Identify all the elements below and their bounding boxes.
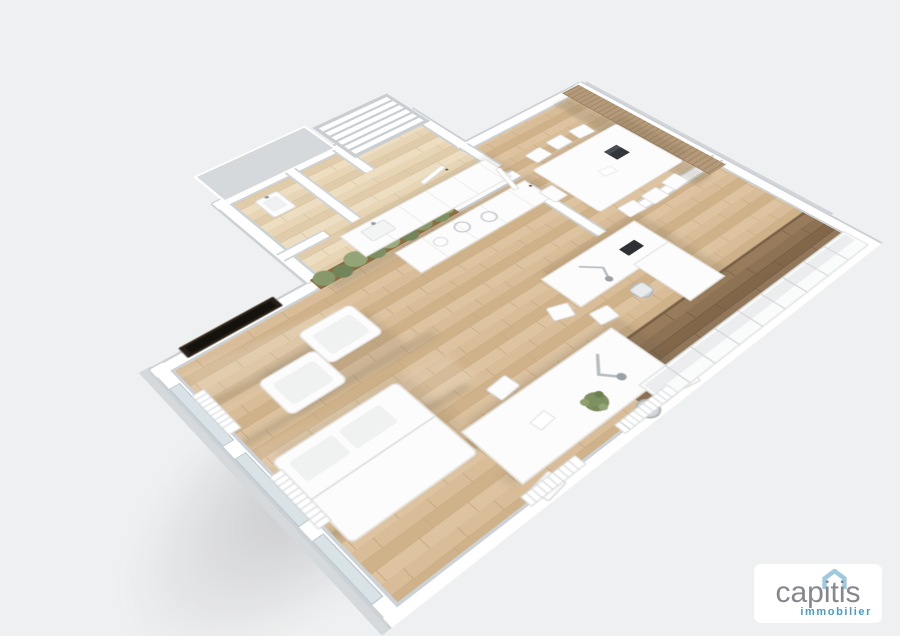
capitis-logo: capitis immobilier <box>754 564 882 623</box>
logo-tagline-text: immobilier <box>800 606 872 618</box>
logo-brand-text: capitis <box>754 577 882 609</box>
floorplan-render-stage: capitis immobilier <box>0 0 900 636</box>
